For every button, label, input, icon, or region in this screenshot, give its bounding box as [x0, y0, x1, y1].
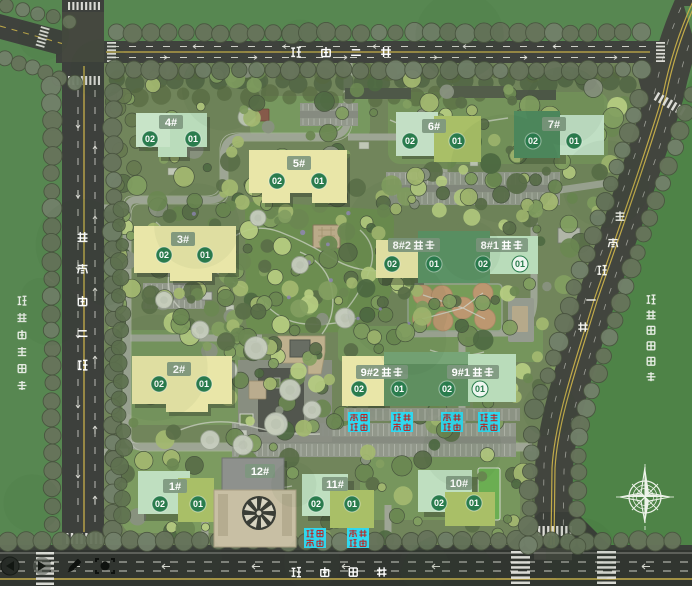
svg-text:01: 01 [347, 499, 357, 509]
svg-text:1#: 1# [169, 481, 181, 493]
svg-text:01: 01 [475, 384, 485, 394]
svg-text:11#: 11# [326, 479, 344, 491]
svg-text:5#: 5# [293, 158, 305, 170]
svg-text:02: 02 [434, 498, 444, 508]
svg-text:01: 01 [515, 259, 525, 269]
svg-text:9#2: 9#2 [361, 367, 379, 379]
svg-text:4#: 4# [165, 117, 177, 129]
svg-text:02: 02 [272, 176, 282, 186]
svg-text:02: 02 [354, 384, 364, 394]
svg-text:9#1: 9#1 [452, 367, 470, 379]
svg-text:01: 01 [394, 384, 404, 394]
svg-text:6#: 6# [428, 121, 440, 133]
svg-text:01: 01 [469, 498, 479, 508]
svg-text:02: 02 [405, 136, 415, 146]
svg-text:02: 02 [442, 384, 452, 394]
svg-text:12#: 12# [251, 466, 269, 478]
svg-text:02: 02 [145, 134, 155, 144]
svg-text:01: 01 [193, 499, 203, 509]
svg-text:01: 01 [188, 134, 198, 144]
svg-text:01: 01 [314, 176, 324, 186]
svg-text:02: 02 [155, 499, 165, 509]
svg-text:02: 02 [311, 499, 321, 509]
